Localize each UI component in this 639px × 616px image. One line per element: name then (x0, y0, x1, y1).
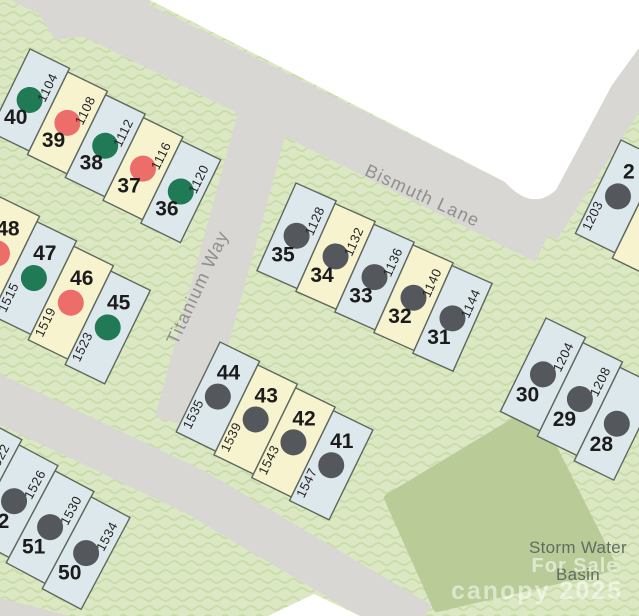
lot-number: 28 (590, 433, 614, 456)
lot-number: 45 (107, 292, 131, 315)
lot-number: 31 (427, 326, 451, 349)
lot-number: 37 (117, 175, 140, 198)
lot-number: 36 (155, 197, 178, 220)
lot-number: 2 (623, 161, 635, 184)
site-plan-map: 4011043911083811123711163611204847151546… (0, 0, 639, 616)
lot-number: 39 (42, 129, 65, 152)
lot-number: 42 (292, 407, 315, 430)
lot-number: 47 (33, 242, 56, 265)
lot-number: 41 (330, 430, 354, 453)
lot-number: 51 (22, 536, 46, 559)
lot-number: 29 (553, 408, 576, 431)
lot-number: 32 (388, 305, 411, 328)
lot-number: 52 (0, 510, 9, 533)
lot-number: 43 (255, 384, 278, 407)
lot-number: 38 (80, 152, 104, 175)
site-plan-svg: 4011043911083811123711163611204847151546… (0, 0, 639, 616)
lot-number: 46 (70, 267, 93, 290)
lot-number: 48 (0, 218, 20, 241)
lot-number: 30 (516, 384, 539, 407)
lot-number: 34 (310, 264, 334, 287)
watermark-canopy-year: canopy 2025 (451, 577, 623, 605)
lot-number: 33 (349, 285, 372, 308)
lot-number: 35 (271, 243, 295, 266)
watermark-for-sale: For Sale (532, 555, 619, 577)
lot-number: 50 (58, 562, 81, 585)
lot-number: 44 (217, 361, 241, 384)
lot-number: 40 (4, 106, 27, 129)
